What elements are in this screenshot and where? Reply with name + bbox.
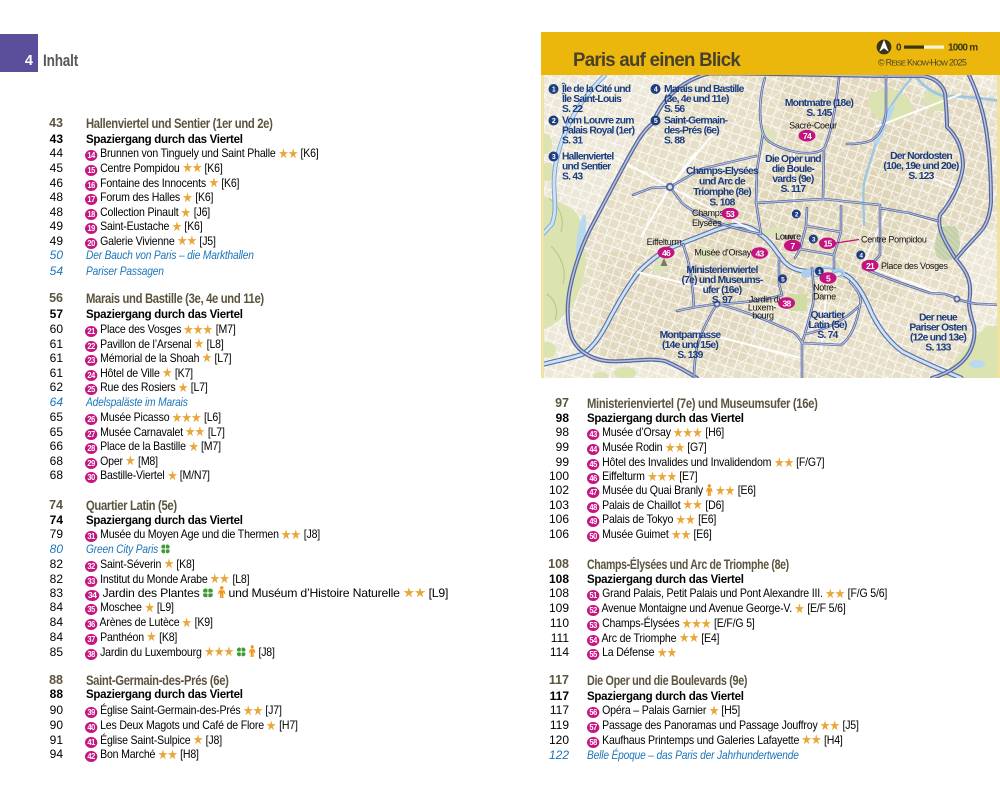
svg-text:53: 53 bbox=[726, 209, 735, 219]
svg-text:Champs-Elysées: Champs-Elysées bbox=[686, 166, 759, 177]
svg-text:S. 117: S. 117 bbox=[781, 184, 807, 195]
svg-text:S. 31: S. 31 bbox=[562, 136, 583, 147]
svg-text:S. 97: S. 97 bbox=[712, 295, 733, 306]
svg-text:Eiffelturm: Eiffelturm bbox=[647, 237, 682, 247]
svg-text:S. 133: S. 133 bbox=[925, 343, 951, 354]
svg-text:S. 123: S. 123 bbox=[908, 171, 934, 182]
svg-text:74: 74 bbox=[803, 131, 812, 141]
svg-text:S. 56: S. 56 bbox=[664, 104, 685, 115]
svg-text:Triomphe (8e): Triomphe (8e) bbox=[693, 187, 751, 198]
svg-text:S. 145: S. 145 bbox=[806, 108, 832, 119]
svg-text:Louvre: Louvre bbox=[775, 232, 801, 242]
svg-text:15: 15 bbox=[824, 239, 833, 249]
svg-text:Champs-: Champs- bbox=[692, 208, 727, 218]
svg-text:Place des Vosges: Place des Vosges bbox=[881, 261, 949, 271]
svg-text:43: 43 bbox=[756, 248, 765, 258]
svg-text:S. 139: S. 139 bbox=[677, 350, 703, 361]
svg-text:und Arc de: und Arc de bbox=[699, 177, 746, 188]
svg-text:Dame: Dame bbox=[813, 292, 836, 302]
svg-text:S. 88: S. 88 bbox=[664, 136, 685, 147]
svg-text:S. 22: S. 22 bbox=[562, 104, 583, 115]
svg-text:Elysées: Elysées bbox=[692, 218, 722, 228]
svg-text:Centre Pompidou: Centre Pompidou bbox=[861, 235, 927, 245]
svg-text:Paris auf einen Blick: Paris auf einen Blick bbox=[573, 49, 741, 71]
svg-text:S. 43: S. 43 bbox=[562, 172, 583, 183]
svg-text:S. 74: S. 74 bbox=[817, 330, 838, 341]
svg-text:Sacré-Coeur: Sacré-Coeur bbox=[789, 121, 837, 131]
svg-text:bourg: bourg bbox=[752, 311, 774, 321]
svg-text:38: 38 bbox=[783, 298, 792, 308]
svg-text:1000 m: 1000 m bbox=[948, 43, 978, 54]
svg-text:46: 46 bbox=[662, 248, 671, 258]
svg-text:Musée d’Orsay: Musée d’Orsay bbox=[694, 248, 751, 258]
svg-text:S. 108: S. 108 bbox=[709, 198, 735, 209]
svg-text:© REISE KNOW-HOW 2025: © REISE KNOW-HOW 2025 bbox=[878, 58, 967, 68]
svg-text:21: 21 bbox=[866, 261, 875, 271]
